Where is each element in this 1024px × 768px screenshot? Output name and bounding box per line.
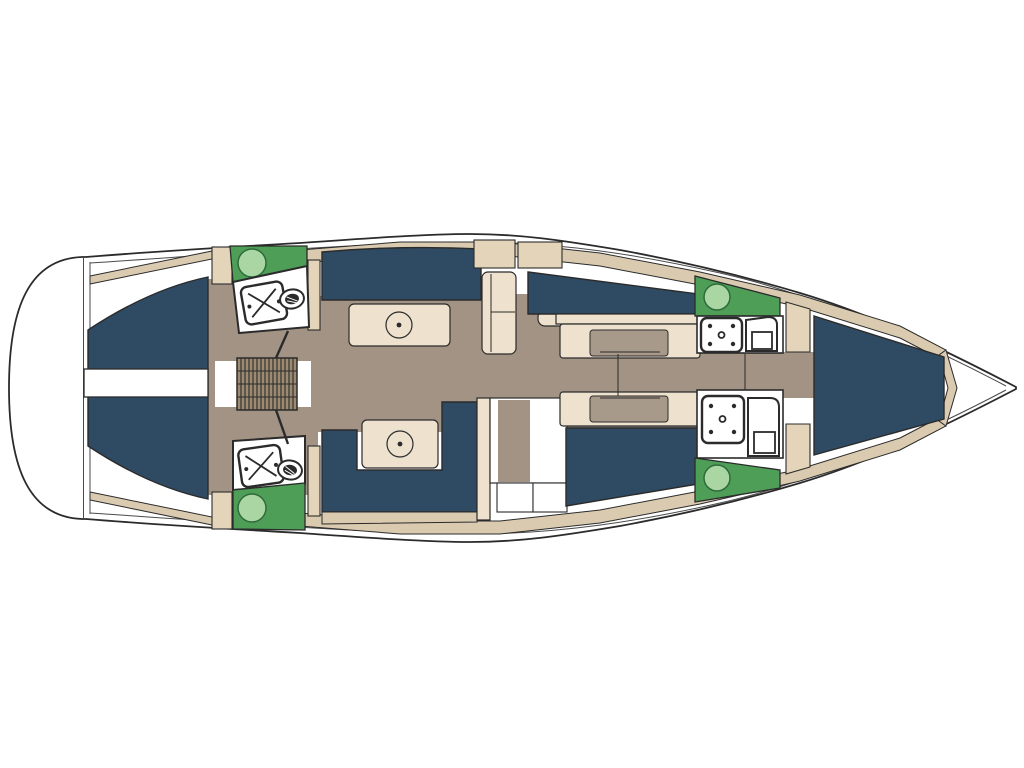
washbasin-aft-starboard bbox=[238, 494, 266, 522]
table-pedestal-starboard-pin bbox=[398, 442, 403, 447]
nav-bulkhead-strip bbox=[477, 398, 490, 520]
galley-cabinet-aft bbox=[474, 240, 515, 268]
bow-bulkhead-starboard bbox=[786, 424, 810, 474]
step-flank-port bbox=[215, 361, 237, 407]
nav-cabinet-cell-2 bbox=[533, 483, 567, 512]
stern-cabinet-starboard bbox=[212, 492, 232, 529]
shower-tray-fwd-port bbox=[701, 318, 742, 352]
shower-tray-aft-starboard bbox=[238, 444, 285, 487]
galley-counter bbox=[482, 272, 516, 354]
midship-headboard-port bbox=[556, 314, 698, 324]
washbasin-fwd-starboard bbox=[704, 465, 730, 491]
bulkhead-strip-aft-starboard bbox=[308, 446, 320, 516]
saloon-sofa-port bbox=[322, 248, 481, 300]
stern-cabinet-port bbox=[212, 247, 232, 284]
shower-tray-fwd-starboard bbox=[702, 396, 744, 443]
bulkhead-strip-aft-port bbox=[308, 260, 320, 330]
nav-desk bbox=[498, 400, 530, 482]
table-pedestal-port-pin bbox=[397, 323, 402, 328]
galley-cabinet-fwd bbox=[518, 242, 562, 268]
nav-cabinet-cell-1 bbox=[497, 483, 533, 512]
sofa-base-trim-starboard bbox=[322, 512, 477, 524]
deck-plan-svg bbox=[0, 0, 1024, 768]
midship-mattress-starboard bbox=[590, 396, 668, 422]
bow-bulkhead-port bbox=[786, 302, 810, 352]
washbasin-aft-port bbox=[238, 249, 266, 277]
washbasin-fwd-port bbox=[704, 284, 730, 310]
step-flank-starboard bbox=[297, 361, 311, 407]
yacht-deck-plan-figure bbox=[0, 0, 1024, 768]
transom-walkway bbox=[84, 369, 208, 397]
